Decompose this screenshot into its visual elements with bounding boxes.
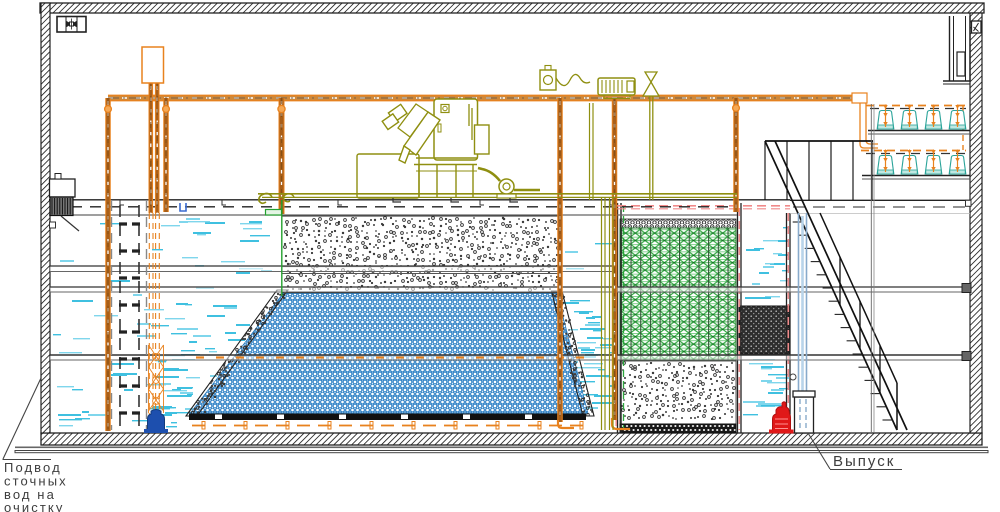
svg-text:очистку: очистку [4, 500, 64, 512]
svg-text:Выпуск: Выпуск [833, 453, 895, 470]
